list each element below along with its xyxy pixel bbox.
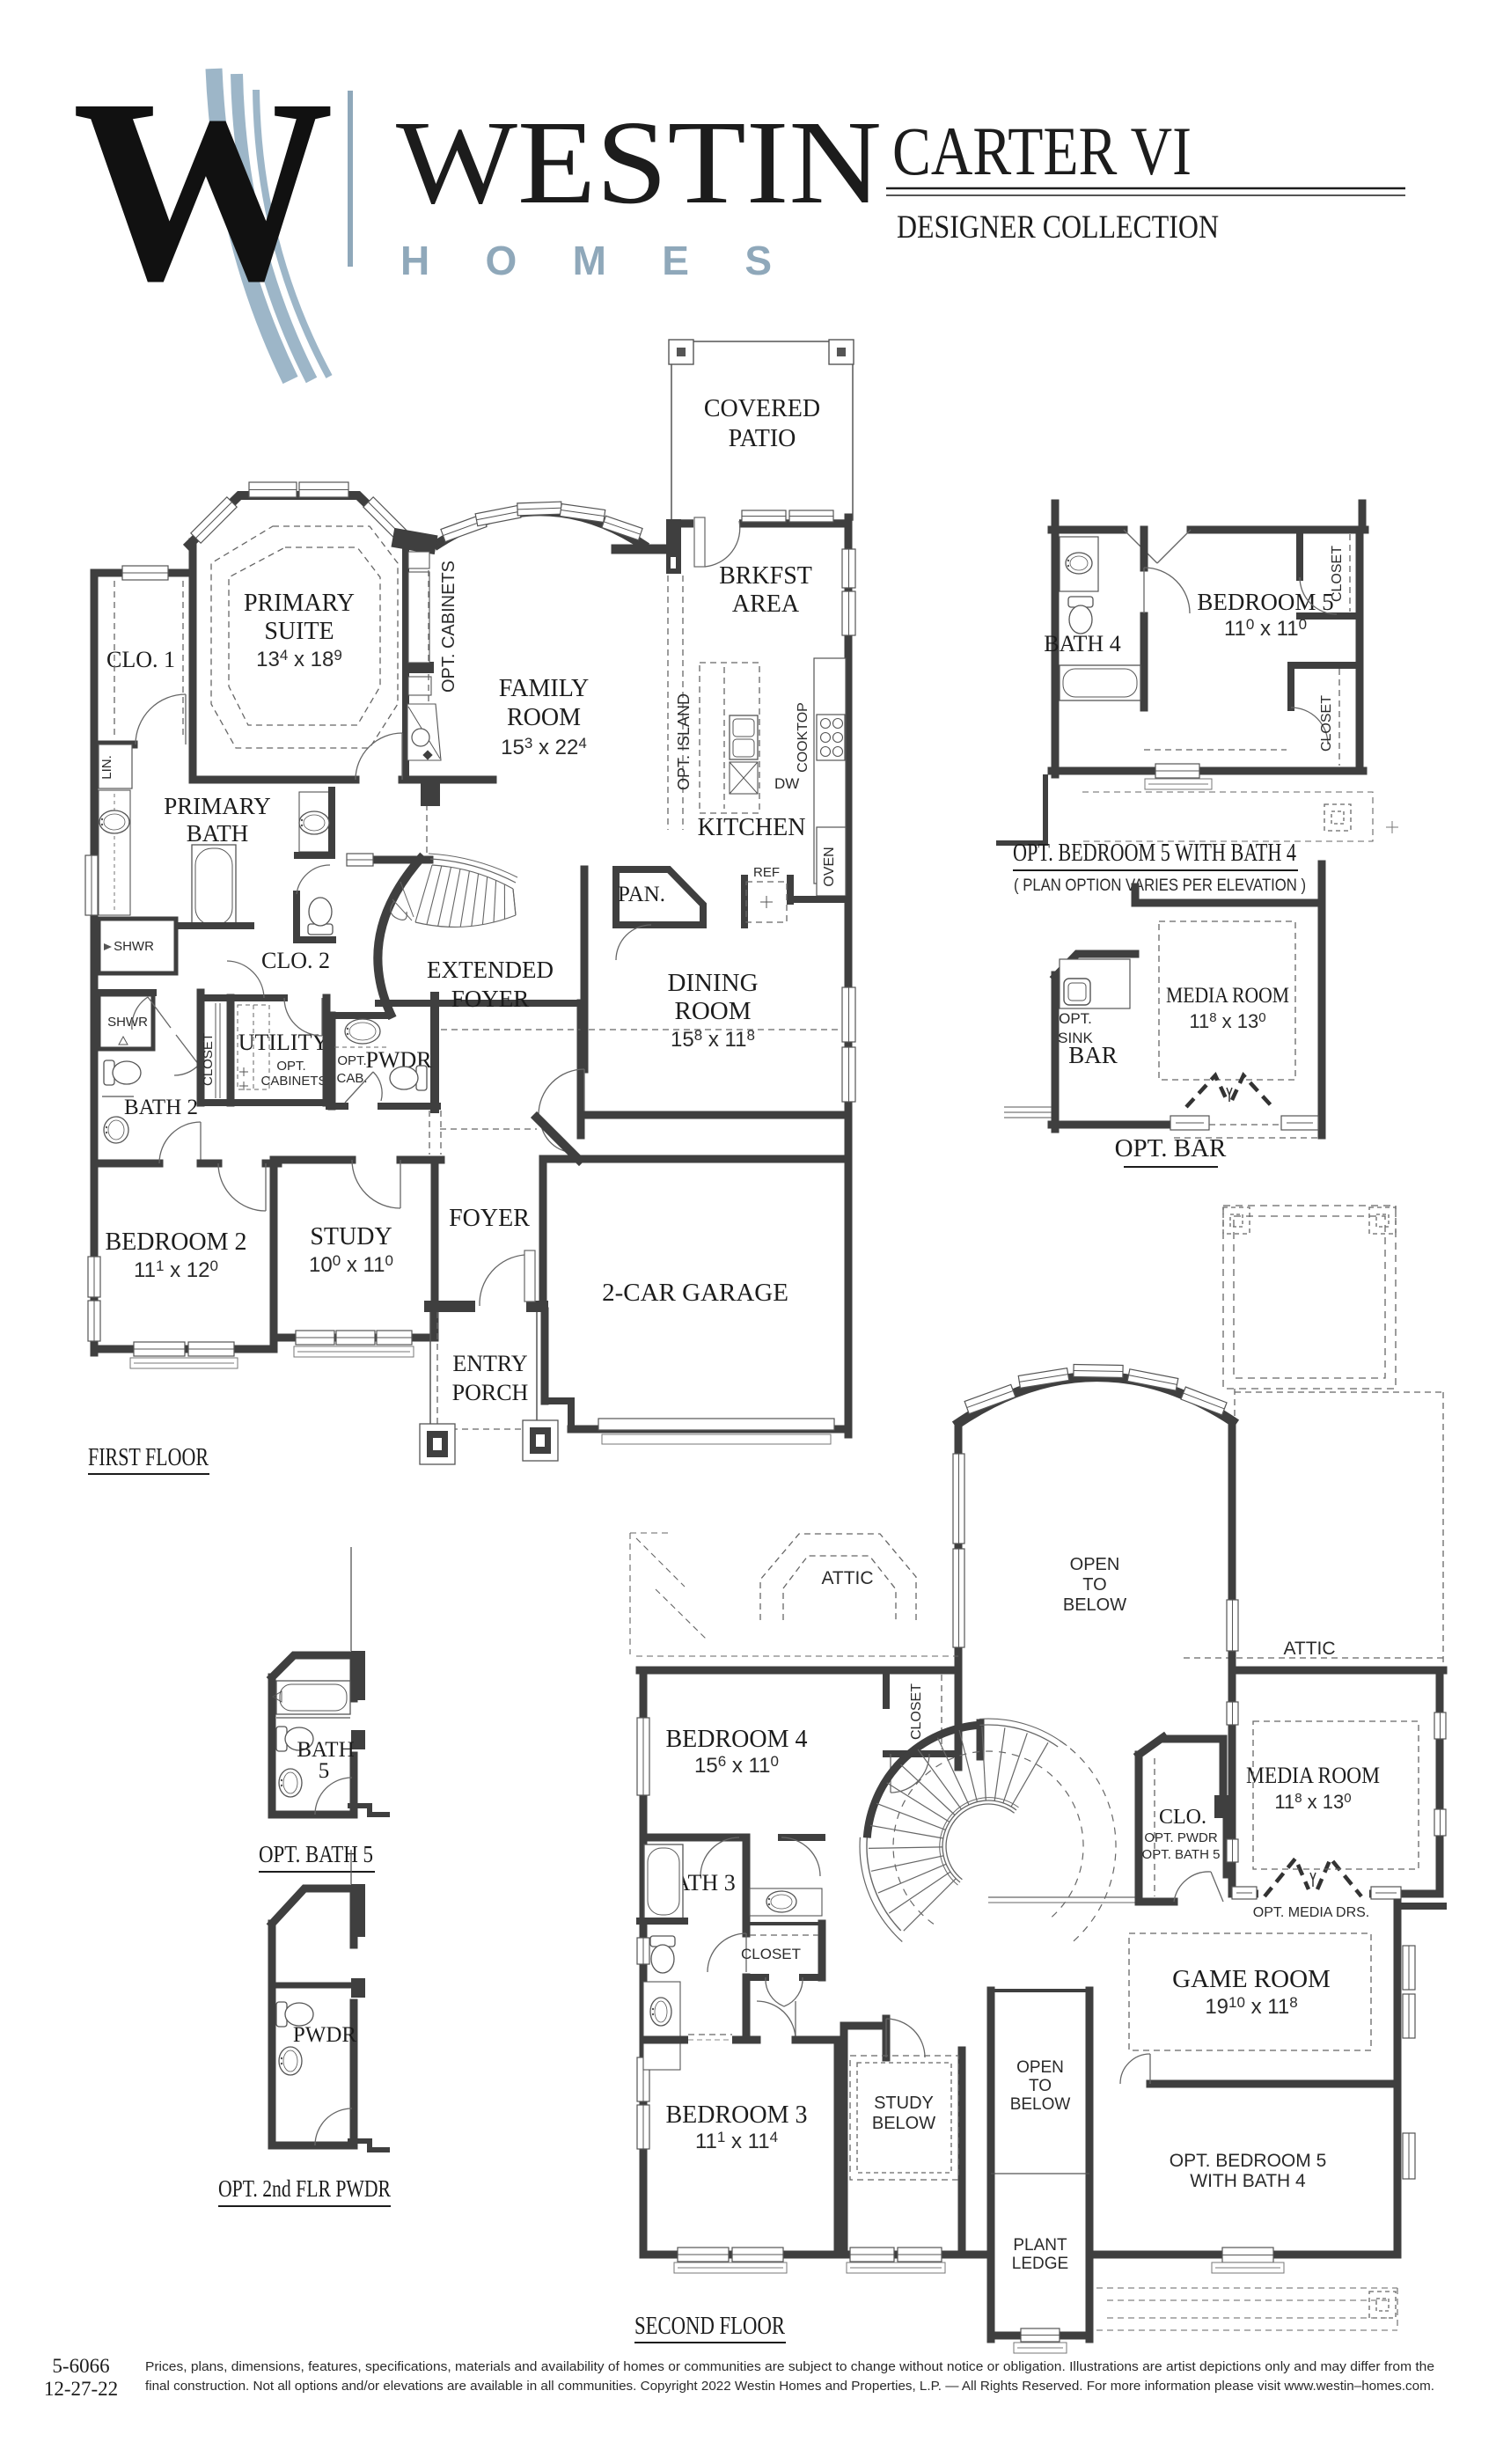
svg-text:5: 5 — [319, 1759, 330, 1783]
svg-text:5-6066: 5-6066 — [52, 2355, 109, 2377]
svg-text:SUITE: SUITE — [264, 618, 334, 645]
svg-text:OVEN: OVEN — [822, 847, 837, 886]
svg-text:CLO. 1: CLO. 1 — [106, 647, 175, 672]
svg-text:CLOSET: CLOSET — [741, 1946, 801, 1962]
svg-text:TO: TO — [1082, 1575, 1106, 1595]
svg-text:OPT. CABINETS: OPT. CABINETS — [439, 561, 458, 693]
svg-text:FOYER: FOYER — [451, 986, 530, 1012]
svg-text:CARTER VI: CARTER VI — [892, 113, 1192, 189]
svg-text:ATTIC: ATTIC — [1283, 1639, 1335, 1659]
svg-text:BATH: BATH — [297, 1738, 354, 1762]
svg-text:ATTIC: ATTIC — [821, 1568, 873, 1588]
svg-text:OPT. BATH 5: OPT. BATH 5 — [259, 1841, 373, 1867]
svg-text:CLO. 2: CLO. 2 — [261, 948, 330, 973]
svg-text:2-CAR GARAGE: 2-CAR GARAGE — [602, 1279, 788, 1307]
svg-text:LEDGE: LEDGE — [1012, 2255, 1068, 2273]
svg-text:156 x 110: 156 x 110 — [694, 1753, 779, 1778]
svg-text:DESIGNER COLLECTION: DESIGNER COLLECTION — [897, 209, 1219, 246]
svg-text:OPEN: OPEN — [1016, 2058, 1064, 2077]
svg-text:W: W — [72, 45, 334, 335]
svg-text:GAME ROOM: GAME ROOM — [1172, 1965, 1331, 1993]
svg-text:PWDR: PWDR — [293, 2023, 357, 2047]
svg-text:111 x 114: 111 x 114 — [695, 2129, 778, 2153]
svg-text:153 x 224: 153 x 224 — [501, 735, 587, 759]
svg-text:UTILITY: UTILITY — [238, 1030, 329, 1055]
svg-text:COVERED: COVERED — [704, 395, 820, 422]
svg-text:OPT.: OPT. — [1059, 1010, 1092, 1027]
svg-text:WITH BATH 4: WITH BATH 4 — [1190, 2171, 1306, 2191]
svg-text:BEDROOM 2: BEDROOM 2 — [105, 1228, 246, 1256]
svg-text:PRIMARY: PRIMARY — [244, 590, 355, 617]
svg-text:FAMILY: FAMILY — [499, 675, 589, 702]
svg-text:final construction. Not all o: final construction. Not all options and/… — [145, 2379, 1434, 2394]
svg-text:118 x 130: 118 x 130 — [1189, 1010, 1265, 1032]
svg-text:CLO.: CLO. — [1159, 1806, 1206, 1829]
svg-text:BELOW: BELOW — [1010, 2095, 1071, 2114]
svg-text:158 x 118: 158 x 118 — [671, 1027, 755, 1052]
svg-text:COOKTOP: COOKTOP — [796, 702, 810, 773]
svg-text:Prices, plans, dimensions, fea: Prices, plans, dimensions, features, spe… — [145, 2359, 1434, 2374]
svg-text:ROOM: ROOM — [674, 997, 751, 1025]
svg-text:MEDIA ROOM: MEDIA ROOM — [1246, 1763, 1380, 1788]
svg-text:PORCH: PORCH — [452, 1380, 529, 1405]
svg-text:OPT.: OPT. — [276, 1059, 305, 1074]
svg-text:PRIMARY: PRIMARY — [164, 793, 271, 819]
svg-text:CABINETS: CABINETS — [260, 1074, 326, 1089]
svg-text:OPT. BATH 5: OPT. BATH 5 — [1142, 1847, 1221, 1862]
svg-text:PAN.: PAN. — [618, 883, 665, 906]
svg-text:PATIO: PATIO — [729, 425, 796, 452]
svg-text:100 x 110: 100 x 110 — [309, 1252, 393, 1277]
svg-text:BEDROOM 4: BEDROOM 4 — [665, 1726, 807, 1753]
svg-text:OPT. 2nd FLR PWDR: OPT. 2nd FLR PWDR — [218, 2175, 391, 2202]
svg-text:OPT. PWDR: OPT. PWDR — [1144, 1830, 1218, 1845]
svg-text:CLOSET: CLOSET — [1319, 695, 1334, 752]
svg-text:BATH 2: BATH 2 — [124, 1096, 198, 1119]
svg-text:12-27-22: 12-27-22 — [44, 2378, 118, 2400]
svg-text:CLOSET: CLOSET — [1330, 546, 1345, 602]
svg-text:OPT. BEDROOM 5: OPT. BEDROOM 5 — [1170, 2151, 1327, 2171]
svg-text:ROOM: ROOM — [507, 704, 581, 731]
svg-text:BAR: BAR — [1068, 1042, 1118, 1068]
svg-text:BEDROOM 5: BEDROOM 5 — [1197, 589, 1333, 615]
svg-text:( PLAN OPTION VARIES PER ELEVA: ( PLAN OPTION VARIES PER ELEVATION ) — [1014, 876, 1306, 895]
svg-text:1910 x 118: 1910 x 118 — [1205, 1994, 1297, 2019]
svg-text:CLOSET: CLOSET — [201, 1033, 216, 1086]
svg-text:MEDIA ROOM: MEDIA ROOM — [1166, 984, 1289, 1008]
svg-text:AREA: AREA — [732, 590, 800, 618]
svg-text:BELOW: BELOW — [872, 2114, 935, 2133]
svg-text:EXTENDED: EXTENDED — [427, 957, 554, 983]
svg-text:OPT. MEDIA DRS.: OPT. MEDIA DRS. — [1253, 1905, 1369, 1920]
svg-text:OPT. BEDROOM 5 WITH BATH 4: OPT. BEDROOM 5 WITH BATH 4 — [1013, 840, 1296, 867]
svg-text:OPT. ISLAND: OPT. ISLAND — [675, 693, 693, 790]
svg-text:OPT. BAR: OPT. BAR — [1115, 1134, 1227, 1162]
svg-text:BATH: BATH — [187, 820, 249, 847]
svg-text:SECOND FLOOR: SECOND FLOOR — [634, 2312, 786, 2340]
svg-text:SHWR: SHWR — [107, 1015, 148, 1030]
svg-text:OPEN: OPEN — [1070, 1555, 1120, 1574]
svg-text:BEDROOM 3: BEDROOM 3 — [665, 2101, 807, 2129]
svg-text:PLANT: PLANT — [1013, 2236, 1067, 2255]
svg-text:WESTIN: WESTIN — [396, 97, 882, 229]
svg-text:BRKFST: BRKFST — [719, 562, 812, 590]
svg-text:STUDY: STUDY — [310, 1223, 392, 1250]
svg-text:BELOW: BELOW — [1063, 1595, 1126, 1615]
svg-text:ENTRY: ENTRY — [452, 1351, 527, 1376]
svg-text:110 x 110: 110 x 110 — [1224, 616, 1307, 641]
svg-text:KITCHEN: KITCHEN — [698, 814, 806, 841]
svg-text:CLOSET: CLOSET — [909, 1683, 924, 1740]
svg-text:118 x 130: 118 x 130 — [1274, 1791, 1351, 1813]
svg-text:SHWR: SHWR — [114, 939, 154, 954]
svg-text:BATH 4: BATH 4 — [1044, 631, 1120, 656]
svg-text:REF: REF — [753, 865, 780, 880]
svg-text:DW: DW — [774, 775, 799, 792]
svg-text:FIRST FLOOR: FIRST FLOOR — [88, 1443, 209, 1471]
svg-text:DINING: DINING — [667, 969, 758, 997]
svg-text:STUDY: STUDY — [874, 2094, 934, 2113]
svg-text:TO: TO — [1029, 2077, 1052, 2095]
svg-text:OPT.: OPT. — [337, 1053, 366, 1068]
svg-text:FOYER: FOYER — [449, 1205, 530, 1232]
svg-text:LIN.: LIN. — [99, 755, 114, 780]
svg-text:111 x 120: 111 x 120 — [134, 1258, 218, 1282]
svg-text:134 x 189: 134 x 189 — [256, 647, 342, 671]
